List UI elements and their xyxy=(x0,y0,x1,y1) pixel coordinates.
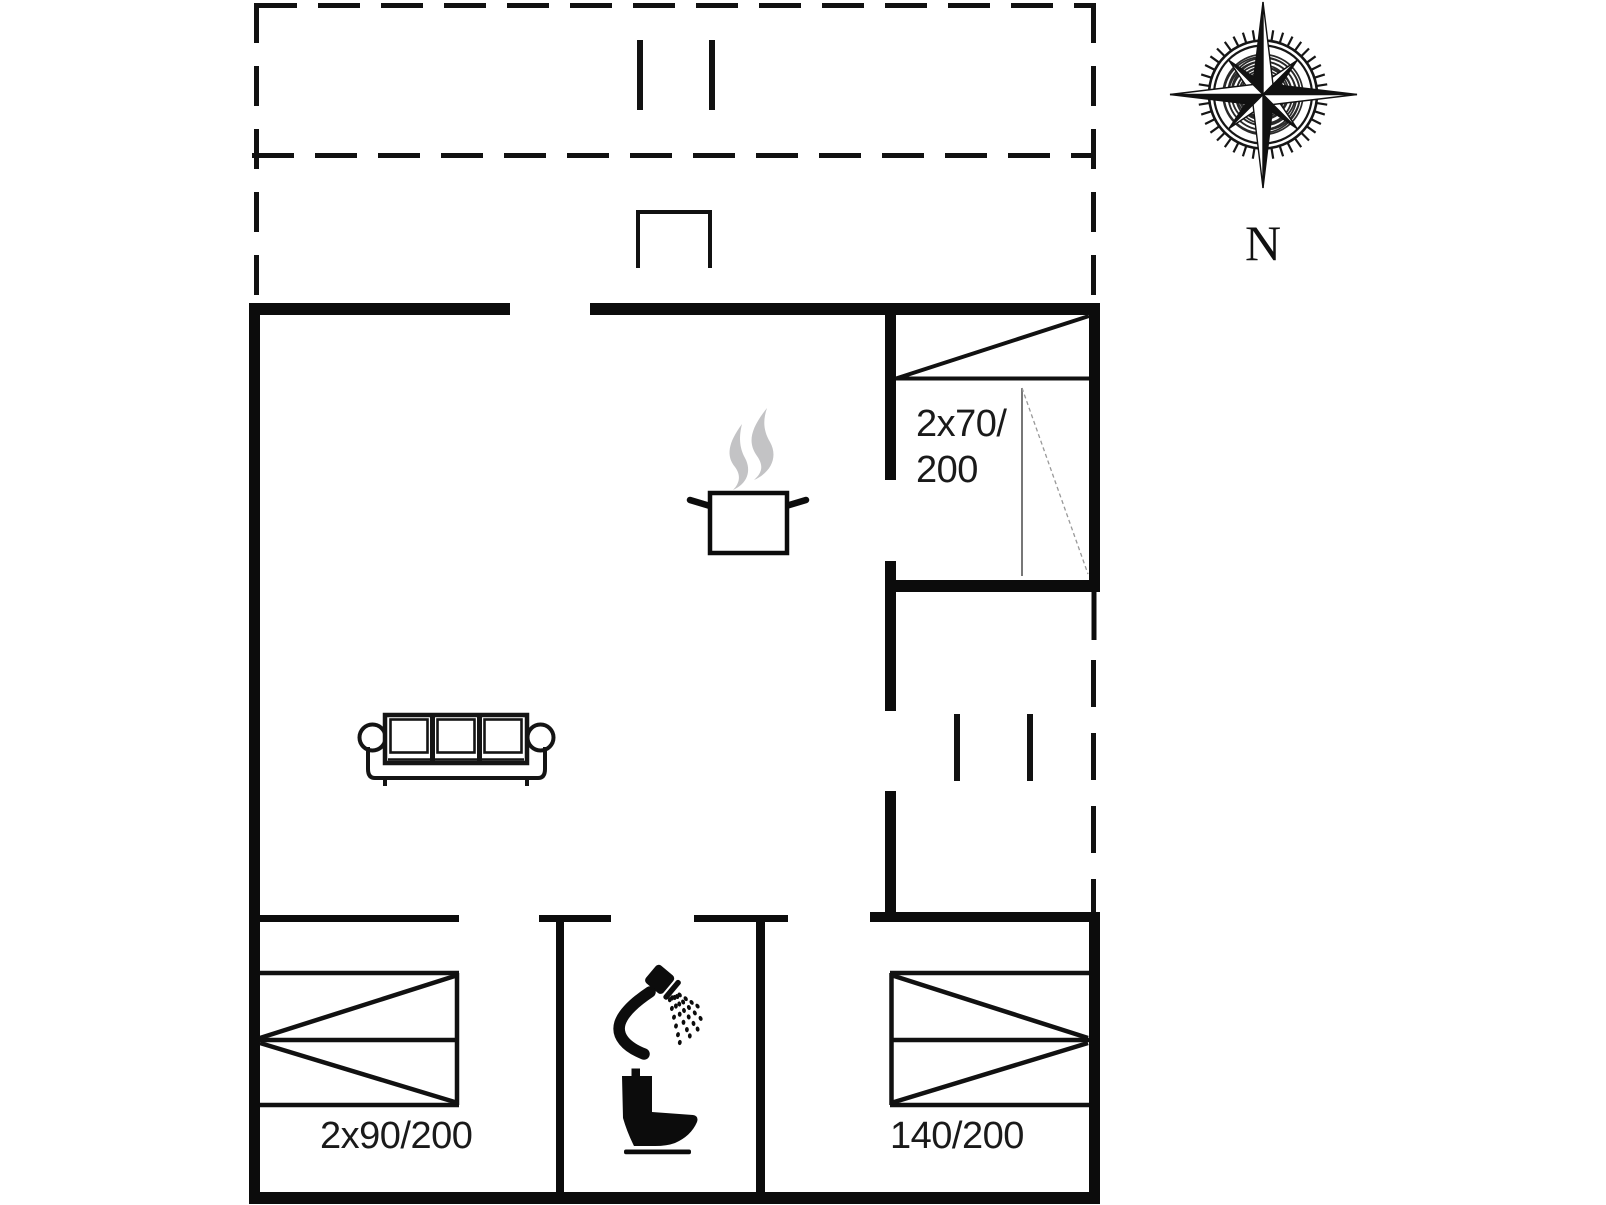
svg-text:N: N xyxy=(1245,215,1281,271)
svg-text:2x90/200: 2x90/200 xyxy=(320,1115,472,1157)
svg-text:200: 200 xyxy=(916,449,978,491)
svg-text:140/200: 140/200 xyxy=(890,1115,1024,1157)
svg-text:2x70/: 2x70/ xyxy=(916,403,1007,445)
